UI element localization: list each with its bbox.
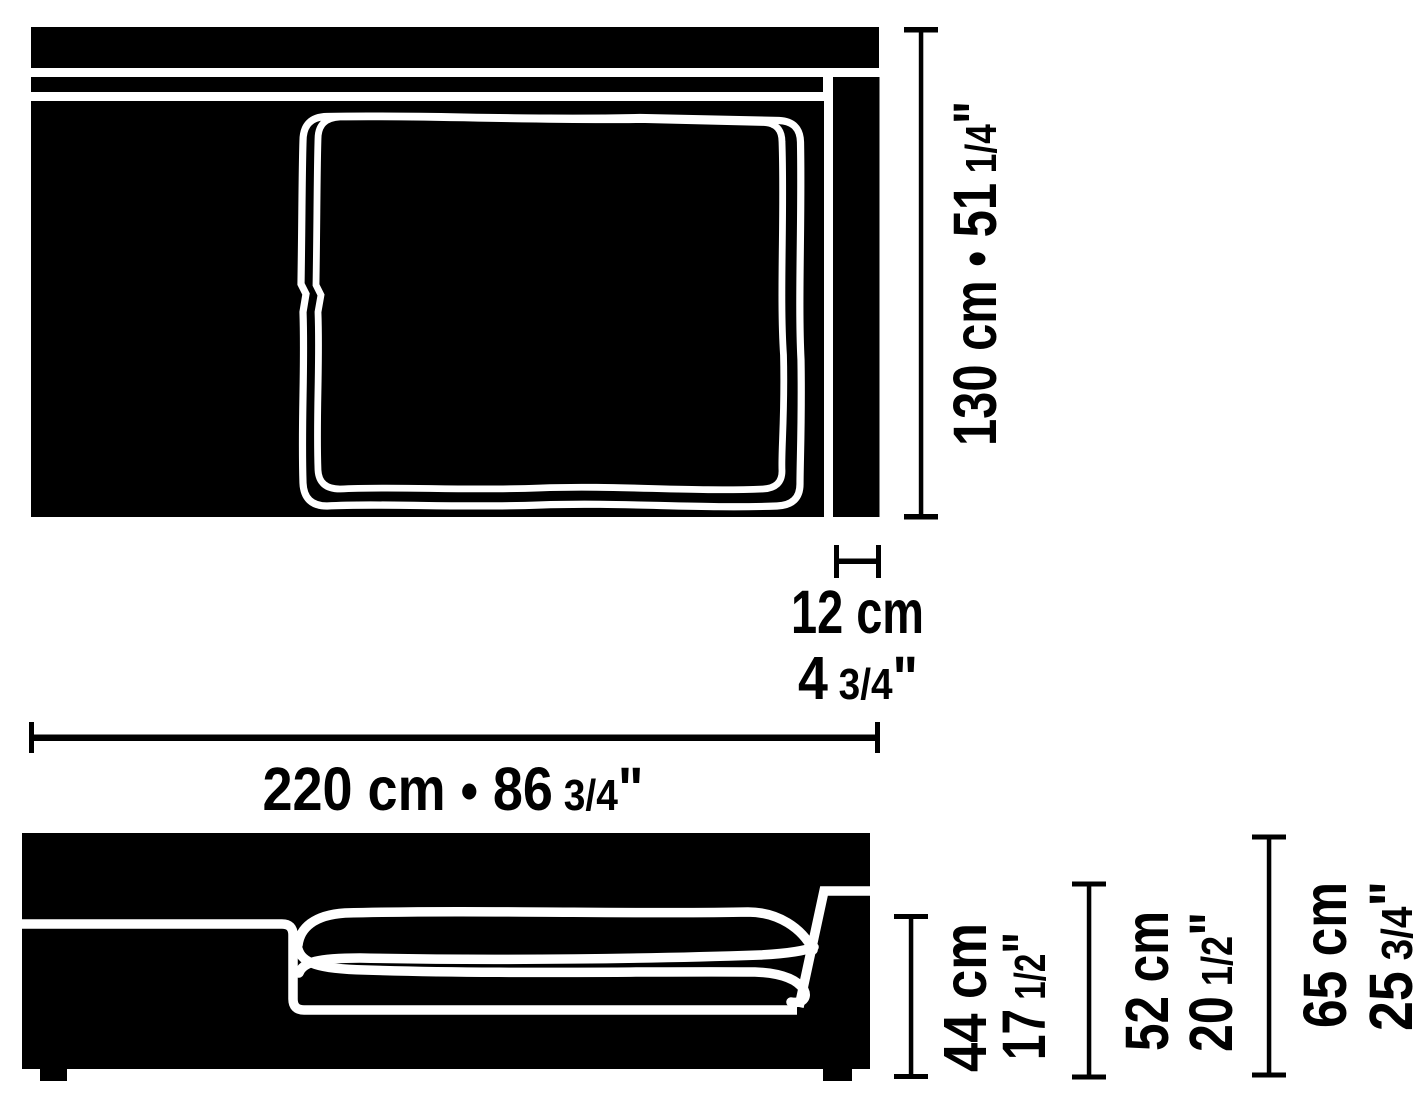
svg-text:17 1/2": 17 1/2" — [990, 932, 1058, 1060]
svg-text:20 1/2": 20 1/2" — [1177, 912, 1245, 1052]
svg-text:52 cm: 52 cm — [1113, 911, 1181, 1051]
svg-text:44 cm: 44 cm — [931, 923, 999, 1072]
svg-text:220 cm • 86 3/4": 220 cm • 86 3/4" — [263, 755, 644, 823]
svg-text:130 cm • 51 1/4": 130 cm • 51 1/4" — [941, 101, 1009, 446]
svg-text:12 cm: 12 cm — [791, 578, 924, 646]
svg-text:25 3/4": 25 3/4" — [1357, 881, 1425, 1031]
svg-text:65 cm: 65 cm — [1291, 882, 1359, 1028]
svg-text:4 3/4": 4 3/4" — [798, 644, 918, 712]
